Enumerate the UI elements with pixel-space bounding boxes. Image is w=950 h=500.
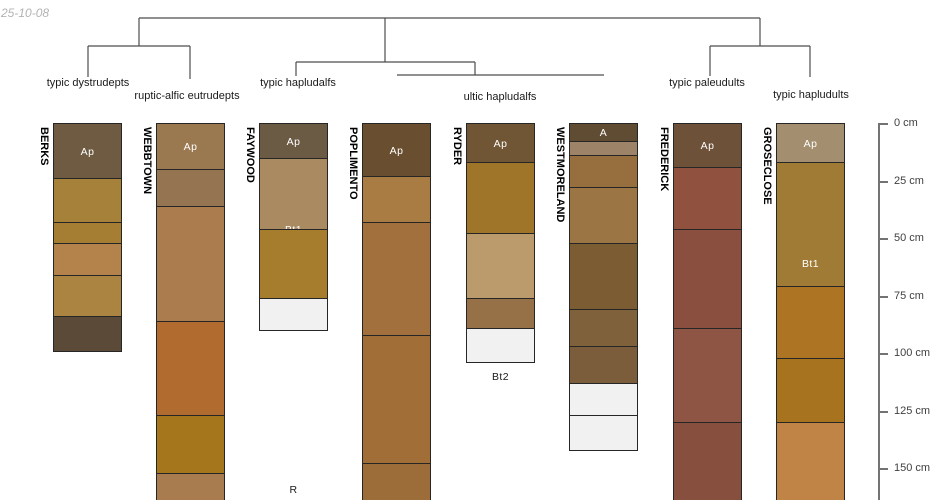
horizon: Bt2: [362, 222, 431, 336]
depth-axis-tick: [878, 411, 888, 413]
horizon: Bt1: [466, 162, 535, 234]
profile-name: FREDERICK: [657, 127, 670, 191]
horizon: Ap: [466, 123, 535, 163]
horizon: BC: [569, 309, 638, 347]
group-label: typic paleudults: [669, 77, 745, 89]
depth-axis-tick: [878, 238, 888, 240]
horizon: Bt1: [776, 162, 845, 287]
horizon: [362, 463, 431, 500]
horizon-label: Ap: [674, 140, 741, 152]
horizon-label: Ap: [54, 146, 121, 158]
group-label: typic dystrudepts: [47, 77, 130, 89]
horizon-label: Ap: [260, 136, 327, 148]
horizon: Ap: [776, 123, 845, 163]
horizon: Bw2: [156, 206, 225, 322]
depth-axis-tick-label: 150 cm: [894, 462, 930, 474]
horizon: [156, 473, 225, 500]
horizon: Bt1: [362, 176, 431, 223]
horizon: BC: [156, 321, 225, 416]
horizon: BE: [569, 155, 638, 188]
horizon: Bt1: [259, 158, 328, 230]
profile-name: WEBBTOWN: [140, 127, 153, 194]
horizon: Bt2: [776, 286, 845, 359]
group-label: typic hapludalfs: [260, 77, 336, 89]
depth-axis-tick: [878, 181, 888, 183]
profile-name: GROSECLOSE: [760, 127, 773, 205]
horizon: C1: [156, 415, 225, 474]
horizon: C: [466, 298, 535, 329]
horizon-label: Ap: [777, 138, 844, 150]
depth-axis-tick-label: 0 cm: [894, 117, 918, 129]
horizon-label: Ap: [363, 145, 430, 157]
depth-axis-tick-label: 50 cm: [894, 232, 924, 244]
profile-name: RYDER: [450, 127, 463, 165]
horizon-label: Bt1: [777, 258, 844, 270]
horizon-label: CB: [54, 374, 121, 386]
horizon-label: C: [467, 483, 534, 495]
profile-name: BERKS: [37, 127, 50, 166]
horizon: Bt2: [569, 243, 638, 310]
profile-name: POPLIMENTO: [346, 127, 359, 200]
horizon: R: [259, 298, 328, 331]
depth-axis-tick: [878, 296, 888, 298]
depth-axis-tick: [878, 353, 888, 355]
horizon: Bw2: [53, 222, 122, 244]
horizon-label: Ap: [467, 138, 534, 150]
horizon: Ap: [673, 123, 742, 168]
horizon: Bt1: [673, 167, 742, 230]
depth-axis-tick: [878, 468, 888, 470]
horizon: C2: [776, 422, 845, 500]
horizon: CB: [53, 243, 122, 276]
depth-axis-line: [878, 123, 880, 500]
horizon: Bt4: [673, 422, 742, 500]
horizon: C: [569, 346, 638, 384]
horizon: Bt1: [569, 187, 638, 244]
horizon: R: [466, 328, 535, 363]
horizon: Bt2: [673, 229, 742, 329]
depth-axis-tick-label: 75 cm: [894, 290, 924, 302]
depth-axis-tick-label: 25 cm: [894, 175, 924, 187]
soil-profile-dendrogram-figure: 25-10-08 typic dystrudeptsruptic-alfic e…: [0, 0, 950, 500]
horizon: C1: [776, 358, 845, 423]
group-label: ultic hapludalfs: [464, 91, 537, 103]
horizon: Bt3: [673, 328, 742, 423]
horizon: Ap: [362, 123, 431, 177]
horizon-label: A: [570, 127, 637, 139]
horizon-label: Bt2: [467, 371, 534, 383]
horizon: R: [569, 415, 638, 451]
depth-axis-tick-label: 125 cm: [894, 405, 930, 417]
group-label: typic hapludults: [773, 89, 849, 101]
horizon: Bt2: [466, 233, 535, 299]
horizon-label: R: [260, 484, 327, 496]
group-label: ruptic-alfic eutrudepts: [134, 90, 239, 102]
horizon-label: C: [54, 443, 121, 455]
horizon: R: [53, 316, 122, 352]
horizon-label: Bt2: [260, 365, 327, 377]
horizon: Bw1: [53, 178, 122, 223]
horizon: Cr: [569, 383, 638, 416]
horizon: C: [53, 275, 122, 317]
horizon-label: Ap: [157, 141, 224, 153]
horizon: Bw1: [156, 169, 225, 207]
profile-name: WESTMORELAND: [553, 127, 566, 222]
horizon: Bt2: [259, 229, 328, 299]
depth-axis-tick: [878, 123, 888, 125]
horizon: Bt3: [362, 335, 431, 464]
profile-name: FAYWOOD: [243, 127, 256, 183]
horizon: E: [569, 141, 638, 156]
horizon: Ap: [156, 123, 225, 170]
horizon: Ap: [53, 123, 122, 179]
depth-axis-tick-label: 100 cm: [894, 347, 930, 359]
horizon: A: [569, 123, 638, 142]
horizon: Ap: [259, 123, 328, 159]
